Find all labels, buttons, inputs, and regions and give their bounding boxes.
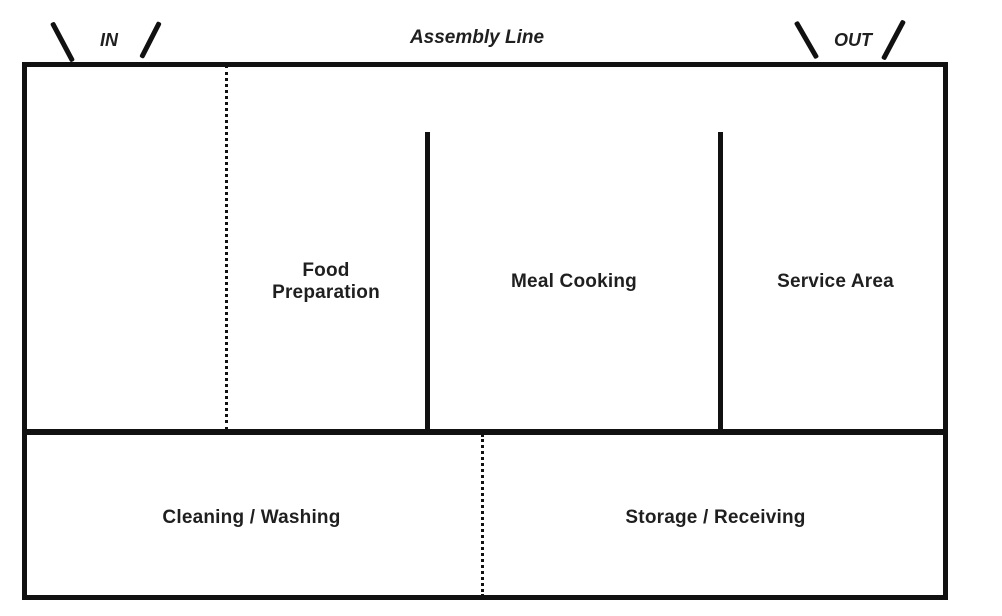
zone-food-preparation: Food Preparation [227, 132, 425, 431]
zone-cleaning-washing: Cleaning / Washing [22, 435, 481, 600]
zone-meal-cooking: Meal Cooking [430, 132, 718, 431]
in-door-swing-left-icon [50, 21, 75, 62]
zone-label-text: Meal Cooking [511, 271, 637, 293]
zone-label-text: Storage / Receiving [625, 507, 805, 529]
in-door-swing-right-icon [139, 21, 162, 59]
zone-label-text: Service Area [777, 271, 894, 293]
zone-service-area: Service Area [723, 132, 948, 431]
out-door-swing-right-icon [881, 19, 906, 60]
assembly-line-floor-plan: Assembly Line IN OUT Food Preparation Me… [0, 0, 1002, 616]
out-door-swing-left-icon [794, 21, 819, 60]
in-door-label: IN [84, 30, 134, 51]
zone-label-text: Food Preparation [254, 260, 399, 304]
out-door-label: OUT [824, 30, 882, 51]
diagram-title: Assembly Line [352, 27, 602, 49]
zone-storage-receiving: Storage / Receiving [483, 435, 948, 600]
zone-label-text: Cleaning / Washing [162, 507, 340, 529]
